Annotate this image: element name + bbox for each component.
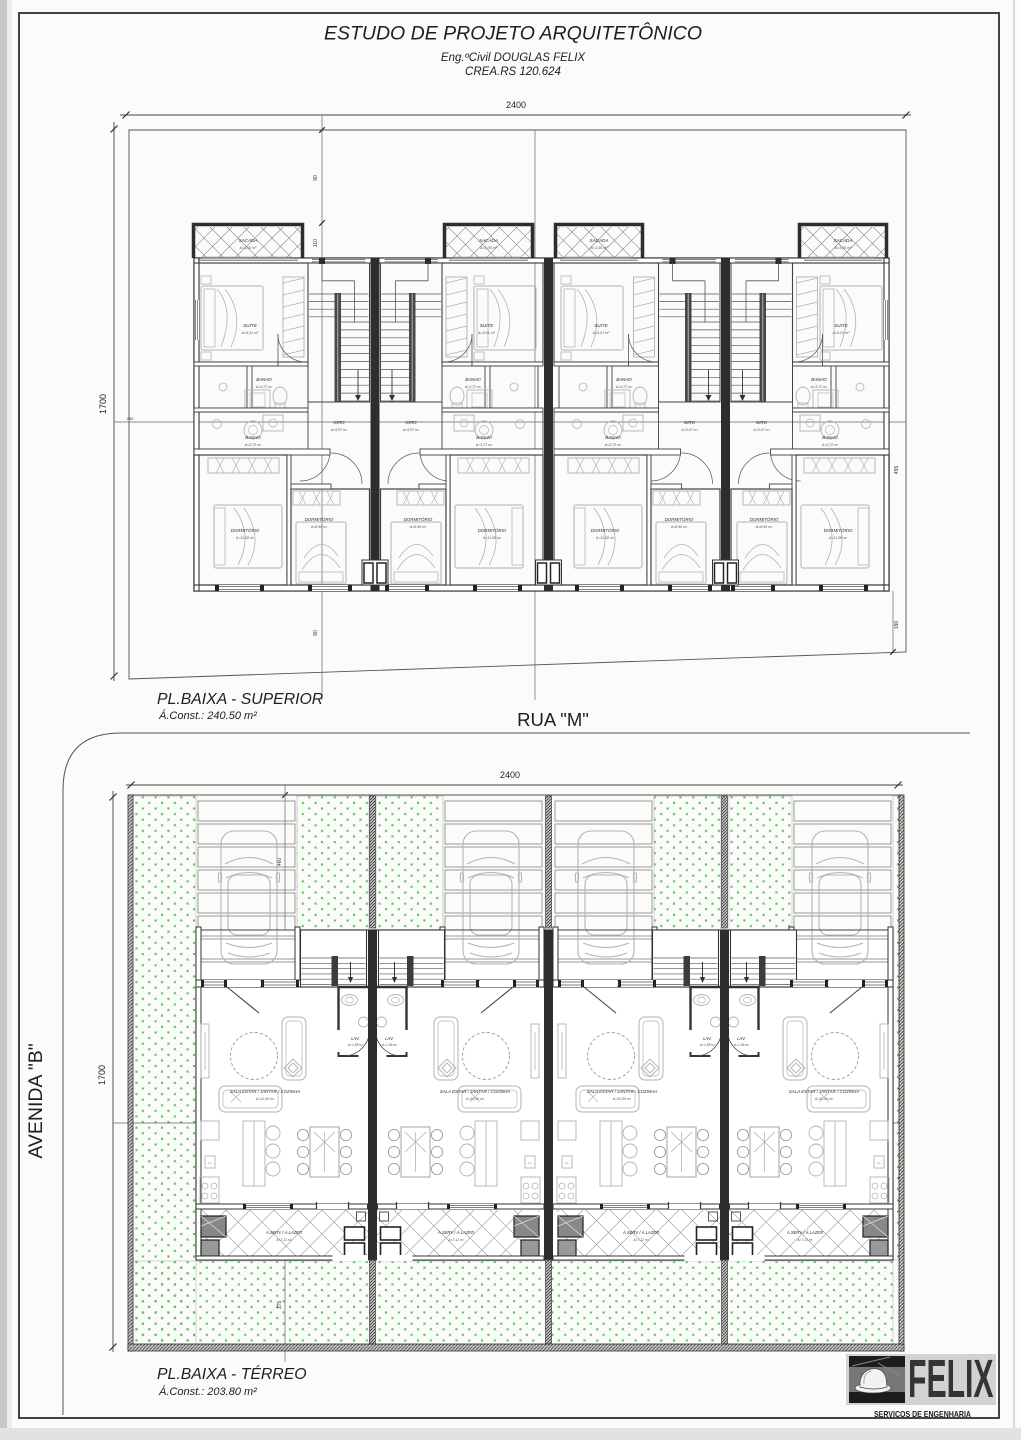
svg-text:SACADA: SACADA: [834, 238, 853, 243]
svg-text:90: 90: [313, 175, 319, 181]
svg-text:A=32,56 m²: A=32,56 m²: [255, 1097, 275, 1101]
svg-text:SALA ESTAR / JANTAR / COZINHA: SALA ESTAR / JANTAR / COZINHA: [587, 1089, 657, 1094]
svg-text:A=3,72 m²: A=3,72 m²: [475, 443, 493, 447]
svg-text:A=1,58 m²: A=1,58 m²: [699, 1043, 716, 1047]
svg-text:A=3,72 m²: A=3,72 m²: [244, 443, 262, 447]
svg-text:A=32,56 m²: A=32,56 m²: [465, 1097, 485, 1101]
svg-text:DORMITÓRIO: DORMITÓRIO: [404, 517, 433, 522]
svg-text:DORMITÓRIO: DORMITÓRIO: [665, 517, 694, 522]
svg-text:A=8,96 m²: A=8,96 m²: [409, 525, 427, 529]
svg-text:BANHO: BANHO: [605, 435, 621, 440]
svg-text:A=9,01 m²: A=9,01 m²: [477, 331, 495, 335]
svg-text:BANHO: BANHO: [245, 435, 261, 440]
svg-text:SUITE: SUITE: [834, 323, 848, 328]
svg-text:GIRO: GIRO: [333, 420, 345, 425]
svg-text:SUITE: SUITE: [480, 323, 494, 328]
svg-text:SALA ESTAR / JANTAR / COZINHA: SALA ESTAR / JANTAR / COZINHA: [789, 1089, 859, 1094]
svg-text:Fo: Fo: [565, 1161, 569, 1165]
svg-text:A=7,12 m²: A=7,12 m²: [632, 1238, 649, 1242]
svg-text:A=3,72 m²: A=3,72 m²: [604, 443, 622, 447]
svg-text:A=9,01 m²: A=9,01 m²: [592, 331, 610, 335]
svg-text:455: 455: [894, 466, 900, 475]
svg-text:Á.SERV / Á.LAZER: Á.SERV / Á.LAZER: [265, 1230, 302, 1235]
svg-text:2400: 2400: [500, 770, 520, 780]
svg-text:Á.SERV / Á.LAZER: Á.SERV / Á.LAZER: [622, 1230, 659, 1235]
svg-text:GIRO: GIRO: [684, 420, 696, 425]
svg-text:FELIX: FELIX: [908, 1348, 994, 1409]
svg-text:CREA.RS 120.624: CREA.RS 120.624: [465, 66, 561, 78]
svg-text:Á.Const.: 203.80 m²: Á.Const.: 203.80 m²: [158, 1385, 257, 1398]
svg-text:A=3,72 m²: A=3,72 m²: [255, 385, 273, 389]
svg-text:SUITE: SUITE: [594, 323, 608, 328]
svg-text:Á.SERV / Á.LAZER: Á.SERV / Á.LAZER: [786, 1230, 823, 1235]
svg-text:A=7,12 m²: A=7,12 m²: [275, 1238, 292, 1242]
svg-text:A=8,96 m²: A=8,96 m²: [670, 525, 688, 529]
svg-text:Á.SERV / Á.LAZER: Á.SERV / Á.LAZER: [437, 1230, 474, 1235]
svg-text:A=3,72 m²: A=3,72 m²: [821, 443, 839, 447]
svg-text:A=11,58 m²: A=11,58 m²: [595, 536, 615, 540]
svg-text:A=7,12 m²: A=7,12 m²: [447, 1238, 464, 1242]
svg-text:PL.BAIXA - SUPERIOR: PL.BAIXA - SUPERIOR: [157, 691, 323, 708]
svg-text:Eng.ºCivil DOUGLAS FELIX: Eng.ºCivil DOUGLAS FELIX: [441, 52, 586, 64]
svg-text:110: 110: [313, 239, 319, 247]
svg-text:A=7,12 m²: A=7,12 m²: [796, 1238, 813, 1242]
svg-text:230: 230: [127, 416, 134, 421]
svg-text:RUA "M": RUA "M": [517, 709, 589, 730]
svg-text:2400: 2400: [506, 100, 526, 110]
svg-text:DORMITÓRIO: DORMITÓRIO: [591, 528, 620, 533]
svg-text:A=3,05 m²: A=3,05 m²: [590, 246, 608, 250]
svg-text:A=11,58 m²: A=11,58 m²: [482, 536, 502, 540]
svg-text:A=3,05 m²: A=3,05 m²: [834, 246, 852, 250]
svg-text:A=1,58 m²: A=1,58 m²: [733, 1043, 750, 1047]
svg-text:DORMITÓRIO: DORMITÓRIO: [305, 517, 334, 522]
svg-text:460: 460: [277, 858, 283, 867]
svg-text:BANHO: BANHO: [822, 435, 838, 440]
svg-text:BANHO: BANHO: [811, 377, 827, 382]
svg-text:SERVIÇOS DE ENGENHARIA: SERVIÇOS DE ENGENHARIA: [874, 1409, 971, 1419]
svg-text:SACADA: SACADA: [590, 238, 609, 243]
svg-text:1700: 1700: [98, 394, 108, 414]
svg-text:A=32,56 m²: A=32,56 m²: [612, 1097, 632, 1101]
svg-text:SALA ESTAR / JANTAR / COZINHA: SALA ESTAR / JANTAR / COZINHA: [230, 1089, 300, 1094]
svg-text:Fo: Fo: [528, 1161, 532, 1165]
svg-text:SALA ESTAR / JANTAR / COZINHA: SALA ESTAR / JANTAR / COZINHA: [440, 1089, 510, 1094]
svg-text:LAV.: LAV.: [703, 1036, 712, 1041]
svg-text:A=32,56 m²: A=32,56 m²: [814, 1097, 834, 1101]
svg-text:190: 190: [894, 621, 900, 630]
svg-text:BANHO: BANHO: [256, 377, 272, 382]
svg-text:DORMITÓRIO: DORMITÓRIO: [478, 528, 507, 533]
svg-text:PL.BAIXA - TÉRREO: PL.BAIXA - TÉRREO: [157, 1364, 307, 1383]
svg-text:A=3,72 m²: A=3,72 m²: [615, 385, 633, 389]
svg-text:80: 80: [313, 630, 319, 636]
svg-text:A=5,57 m²: A=5,57 m²: [330, 428, 348, 432]
svg-text:Fo: Fo: [208, 1161, 212, 1165]
svg-text:Á.Const.: 240.50 m²: Á.Const.: 240.50 m²: [158, 709, 257, 722]
svg-text:A=9,01 m²: A=9,01 m²: [832, 331, 850, 335]
svg-text:GIRO: GIRO: [405, 420, 417, 425]
svg-text:Fo: Fo: [877, 1161, 881, 1165]
svg-text:LAV.: LAV.: [737, 1036, 746, 1041]
svg-text:A=9,01 m²: A=9,01 m²: [241, 331, 259, 335]
svg-text:A=5,57 m²: A=5,57 m²: [402, 428, 420, 432]
svg-text:GIRO: GIRO: [756, 420, 768, 425]
svg-text:BANHO: BANHO: [476, 435, 492, 440]
svg-text:A=5,57 m²: A=5,57 m²: [752, 428, 770, 432]
svg-text:A=3,05 m²: A=3,05 m²: [479, 246, 497, 250]
svg-text:DORMITÓRIO: DORMITÓRIO: [750, 517, 779, 522]
svg-text:A=3,72 m²: A=3,72 m²: [810, 385, 828, 389]
svg-text:A=8,96 m²: A=8,96 m²: [310, 525, 328, 529]
svg-text:A=1,58 m²: A=1,58 m²: [347, 1043, 364, 1047]
svg-text:A=5,57 m²: A=5,57 m²: [680, 428, 698, 432]
svg-text:A=3,05 m²: A=3,05 m²: [239, 246, 257, 250]
svg-text:LAV.: LAV.: [351, 1036, 360, 1041]
svg-text:A=1,58 m²: A=1,58 m²: [381, 1043, 398, 1047]
svg-text:DORMITÓRIO: DORMITÓRIO: [824, 528, 853, 533]
svg-text:AVENIDA "B": AVENIDA "B": [25, 1043, 47, 1158]
svg-text:SUITE: SUITE: [243, 323, 257, 328]
svg-text:A=11,58 m²: A=11,58 m²: [235, 536, 255, 540]
svg-text:A=11,58 m²: A=11,58 m²: [828, 536, 848, 540]
svg-text:ESTUDO DE PROJETO ARQUITETÔNIC: ESTUDO DE PROJETO ARQUITETÔNICO: [324, 22, 702, 45]
svg-text:1700: 1700: [97, 1065, 107, 1085]
svg-text:SACADA: SACADA: [479, 238, 498, 243]
svg-text:DORMITÓRIO: DORMITÓRIO: [231, 528, 260, 533]
svg-text:LAV.: LAV.: [385, 1036, 394, 1041]
svg-text:BANHO: BANHO: [616, 377, 632, 382]
svg-text:SACADA: SACADA: [239, 238, 258, 243]
svg-text:A=3,72 m²: A=3,72 m²: [464, 385, 482, 389]
svg-text:BANHO: BANHO: [465, 377, 481, 382]
svg-text:A=8,96 m²: A=8,96 m²: [755, 525, 773, 529]
svg-text:175: 175: [277, 1301, 283, 1310]
